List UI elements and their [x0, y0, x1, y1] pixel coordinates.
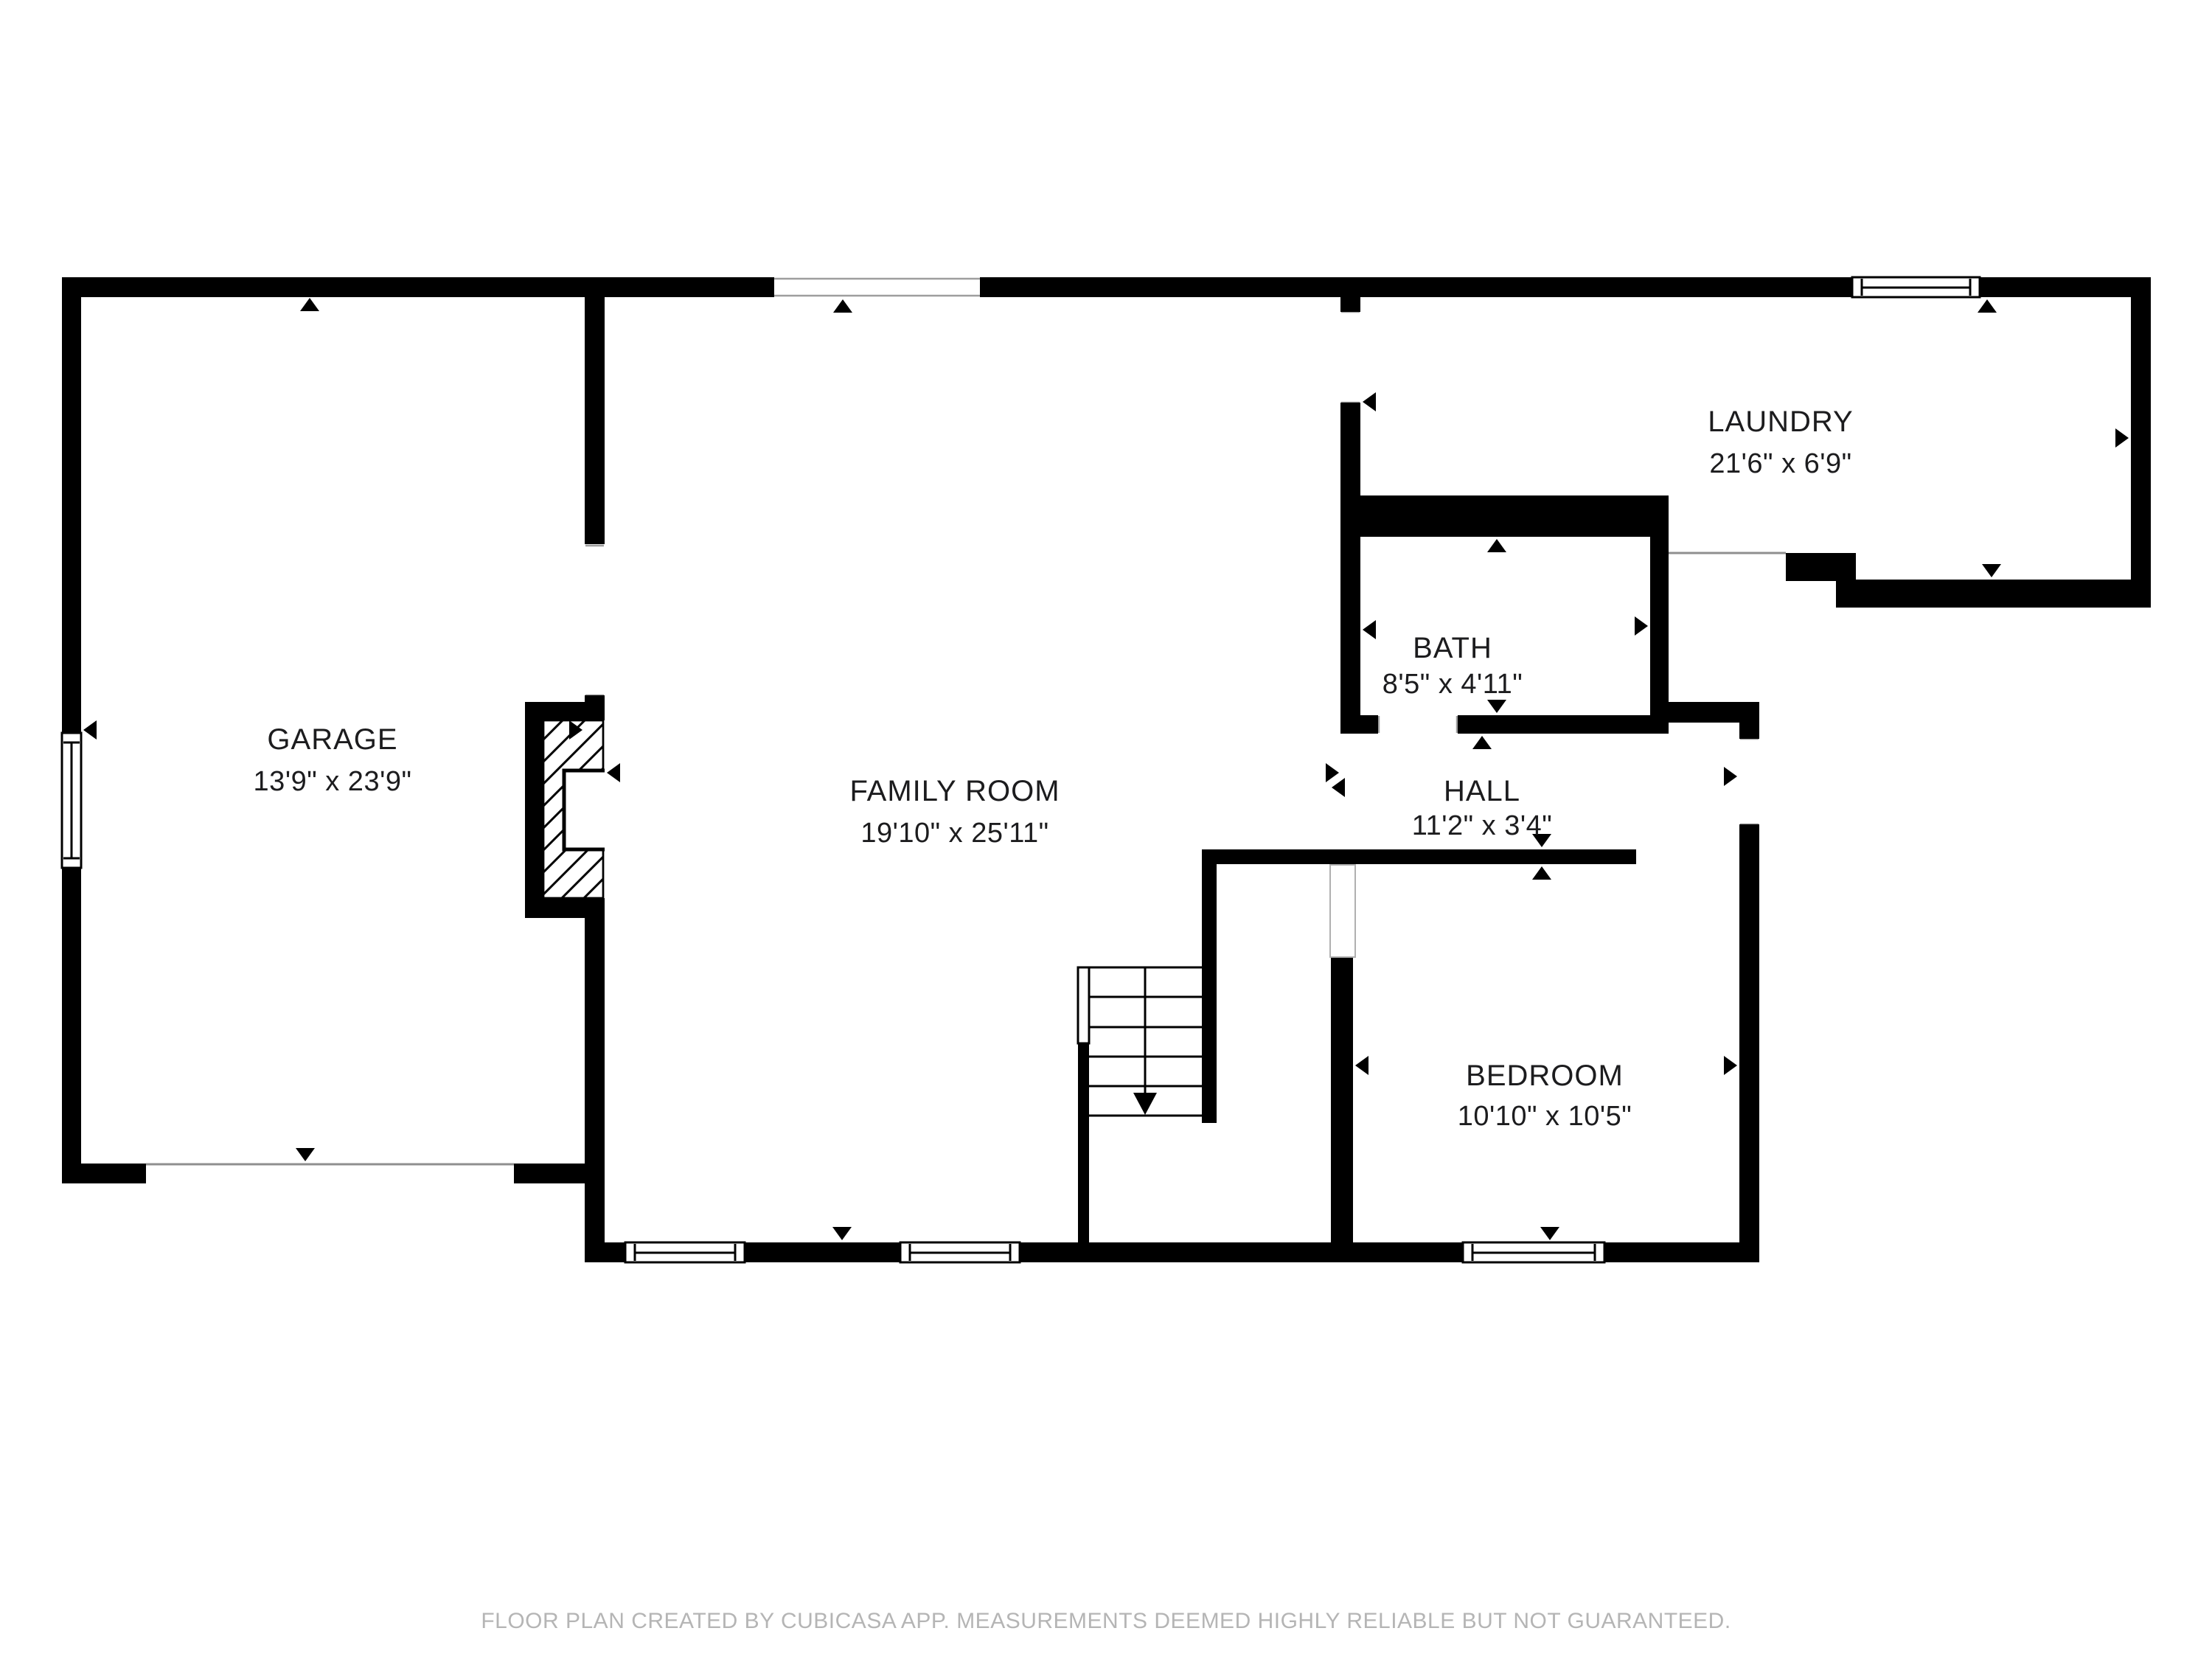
- bath-right-wall: [1650, 537, 1669, 734]
- garage-label: GARAGE: [267, 723, 397, 756]
- left-wall-lower-segment: [62, 868, 81, 1183]
- hall-bottom-wall: [1202, 849, 1636, 864]
- left-wall-upper-segment: [62, 277, 81, 733]
- fireplace-left-band: [525, 702, 543, 918]
- bath-bottom-wall-main: [1458, 715, 1669, 734]
- laundry-bottom-outer-wall: [1836, 580, 2151, 608]
- garage-window: [62, 733, 81, 868]
- bedroom-left-wall: [1331, 957, 1353, 1242]
- fireplace-bottom-band: [525, 898, 605, 918]
- garage-bottom-wall-left-stub: [62, 1164, 146, 1183]
- family-room-dimensions: 19'10" x 25'11": [860, 818, 1048, 849]
- garage-familyroom-wall-upper: [585, 297, 605, 544]
- stairs-right-wall: [1202, 849, 1217, 1123]
- fireplace-top-band: [525, 702, 605, 720]
- floor-plan-canvas: GARAGE 13'9" x 23'9" FAMILY ROOM 19'10" …: [0, 0, 2212, 1659]
- familyroom-bottom-wall-seg1: [586, 1242, 625, 1262]
- hall-label: HALL: [1444, 775, 1520, 807]
- bedroom-label: BEDROOM: [1466, 1060, 1624, 1092]
- laundry-dimensions: 21'6" x 6'9": [1709, 448, 1851, 479]
- right-wall-below-entry-door: [1739, 824, 1759, 1262]
- top-wall-middle-segment: [980, 277, 1852, 297]
- familyroom-bottom-wall-seg2: [745, 1242, 900, 1262]
- familyroom-window-right: [900, 1242, 1020, 1262]
- garage-bottom-wall-right-stub: [514, 1164, 586, 1183]
- bedroom-dimensions: 10'10" x 10'5": [1458, 1101, 1632, 1132]
- laundry-window: [1852, 277, 1980, 297]
- right-wall-above-entry-door: [1739, 702, 1759, 739]
- laundry-step-wall-block: [1786, 553, 1856, 581]
- bath-top-wall: [1340, 495, 1669, 537]
- bedroom-window: [1463, 1242, 1604, 1262]
- fireplace: [525, 702, 605, 918]
- laundry-label: LAUNDRY: [1708, 406, 1853, 438]
- garage-familyroom-wall-lower: [585, 918, 605, 1262]
- top-wall-garage-segment: [62, 277, 774, 297]
- laundry-right-outer-wall: [2131, 277, 2151, 608]
- bedroom-door-leaf: [1330, 865, 1355, 957]
- fireplace-firebox: [564, 771, 605, 849]
- garage-dimensions: 13'9" x 23'9": [254, 766, 412, 797]
- bath-dimensions: 8'5" x 4'11": [1382, 669, 1523, 700]
- stairs-railing: [1078, 967, 1089, 1043]
- family-room-label: FAMILY ROOM: [849, 775, 1060, 807]
- bedroom-bottom-wall-seg: [1604, 1242, 1759, 1262]
- hall-dimensions: 11'2" x 3'4": [1412, 810, 1552, 841]
- top-wall-right-segment: [1980, 277, 2151, 297]
- page-background: [0, 0, 2212, 1659]
- bath-bottom-wall-left-stub: [1340, 715, 1378, 734]
- familyroom-laundry-wall-stub: [1340, 297, 1360, 312]
- familyroom-laundry-wall-main: [1340, 403, 1360, 715]
- familyroom-window-left: [625, 1242, 745, 1262]
- stairs-left-thin-wall: [1078, 1043, 1089, 1242]
- footer-disclaimer: FLOOR PLAN CREATED BY CUBICASA APP. MEAS…: [481, 1609, 1731, 1633]
- bath-label: BATH: [1413, 632, 1492, 664]
- familyroom-bottom-wall-seg3: [1020, 1242, 1463, 1262]
